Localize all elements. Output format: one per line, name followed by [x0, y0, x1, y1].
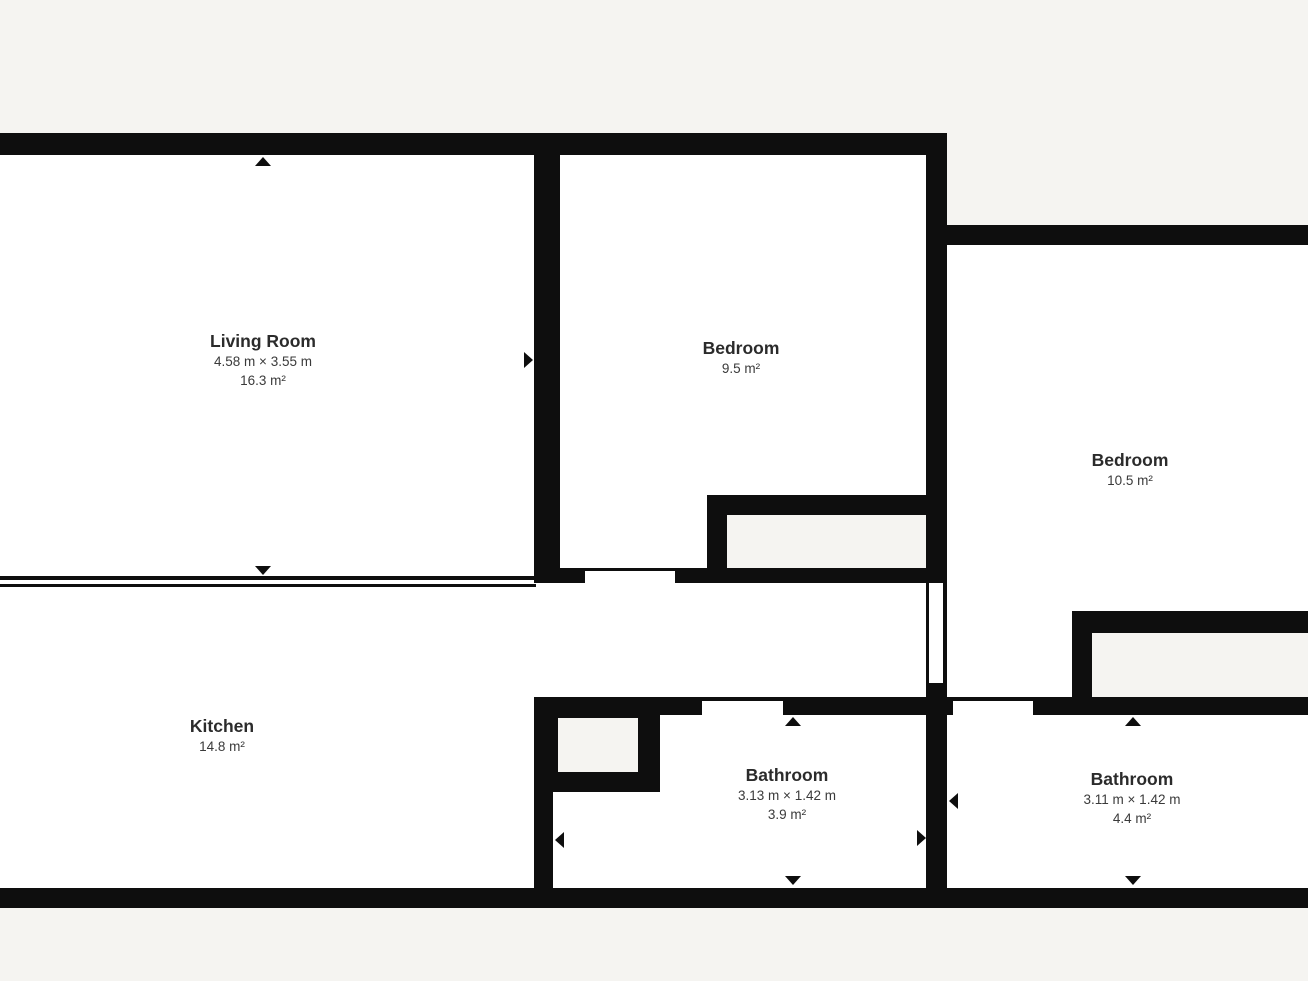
marker-up-bathroom2-icon — [1125, 717, 1141, 726]
wall-shaft1-top — [707, 495, 926, 515]
window-line-lower — [0, 584, 536, 587]
void-shaft-bedroom1 — [727, 515, 926, 568]
wall-bedroom2-top — [945, 225, 1308, 245]
wall-top — [0, 133, 945, 155]
wall-bedroom2-recess-left — [1072, 633, 1092, 699]
door-opening-bathroom-2 — [953, 701, 1033, 715]
marker-down-bathroom1-icon — [785, 876, 801, 885]
void-shaft-bathroom1 — [558, 718, 638, 772]
marker-right-living-room-icon — [524, 352, 533, 368]
marker-down-living-room-icon — [255, 566, 271, 575]
wall-center-vertical — [926, 133, 947, 908]
floor-bathroom-2 — [947, 715, 1308, 888]
marker-right-bathroom1-icon — [917, 830, 926, 846]
floor-living-room-kitchen — [0, 155, 534, 888]
void-recess-bedroom2 — [1092, 633, 1308, 697]
door-opening-bathroom-1 — [702, 701, 783, 715]
wall-shaft1-left — [707, 515, 727, 570]
marker-up-bathroom1-icon — [785, 717, 801, 726]
floor-plan: Living Room 4.58 m × 3.55 m 16.3 m² Bedr… — [0, 0, 1308, 981]
marker-left-bathroom1-icon — [555, 832, 564, 848]
wall-bedroom2-recess-top — [1072, 611, 1308, 633]
floor-hallway — [534, 583, 926, 697]
wall-bathrooms-top — [534, 697, 1308, 715]
window-line-upper — [0, 576, 536, 580]
door-opening-bedroom-2 — [929, 583, 943, 683]
wall-living-bedroom-divider — [534, 133, 560, 583]
wall-bottom — [0, 888, 1308, 908]
marker-left-bathroom2-icon — [949, 793, 958, 809]
marker-up-living-room-icon — [255, 157, 271, 166]
marker-down-bathroom2-icon — [1125, 876, 1141, 885]
wall-kitchen-bathroom-divider — [534, 697, 553, 908]
door-opening-bedroom-1 — [585, 571, 675, 583]
